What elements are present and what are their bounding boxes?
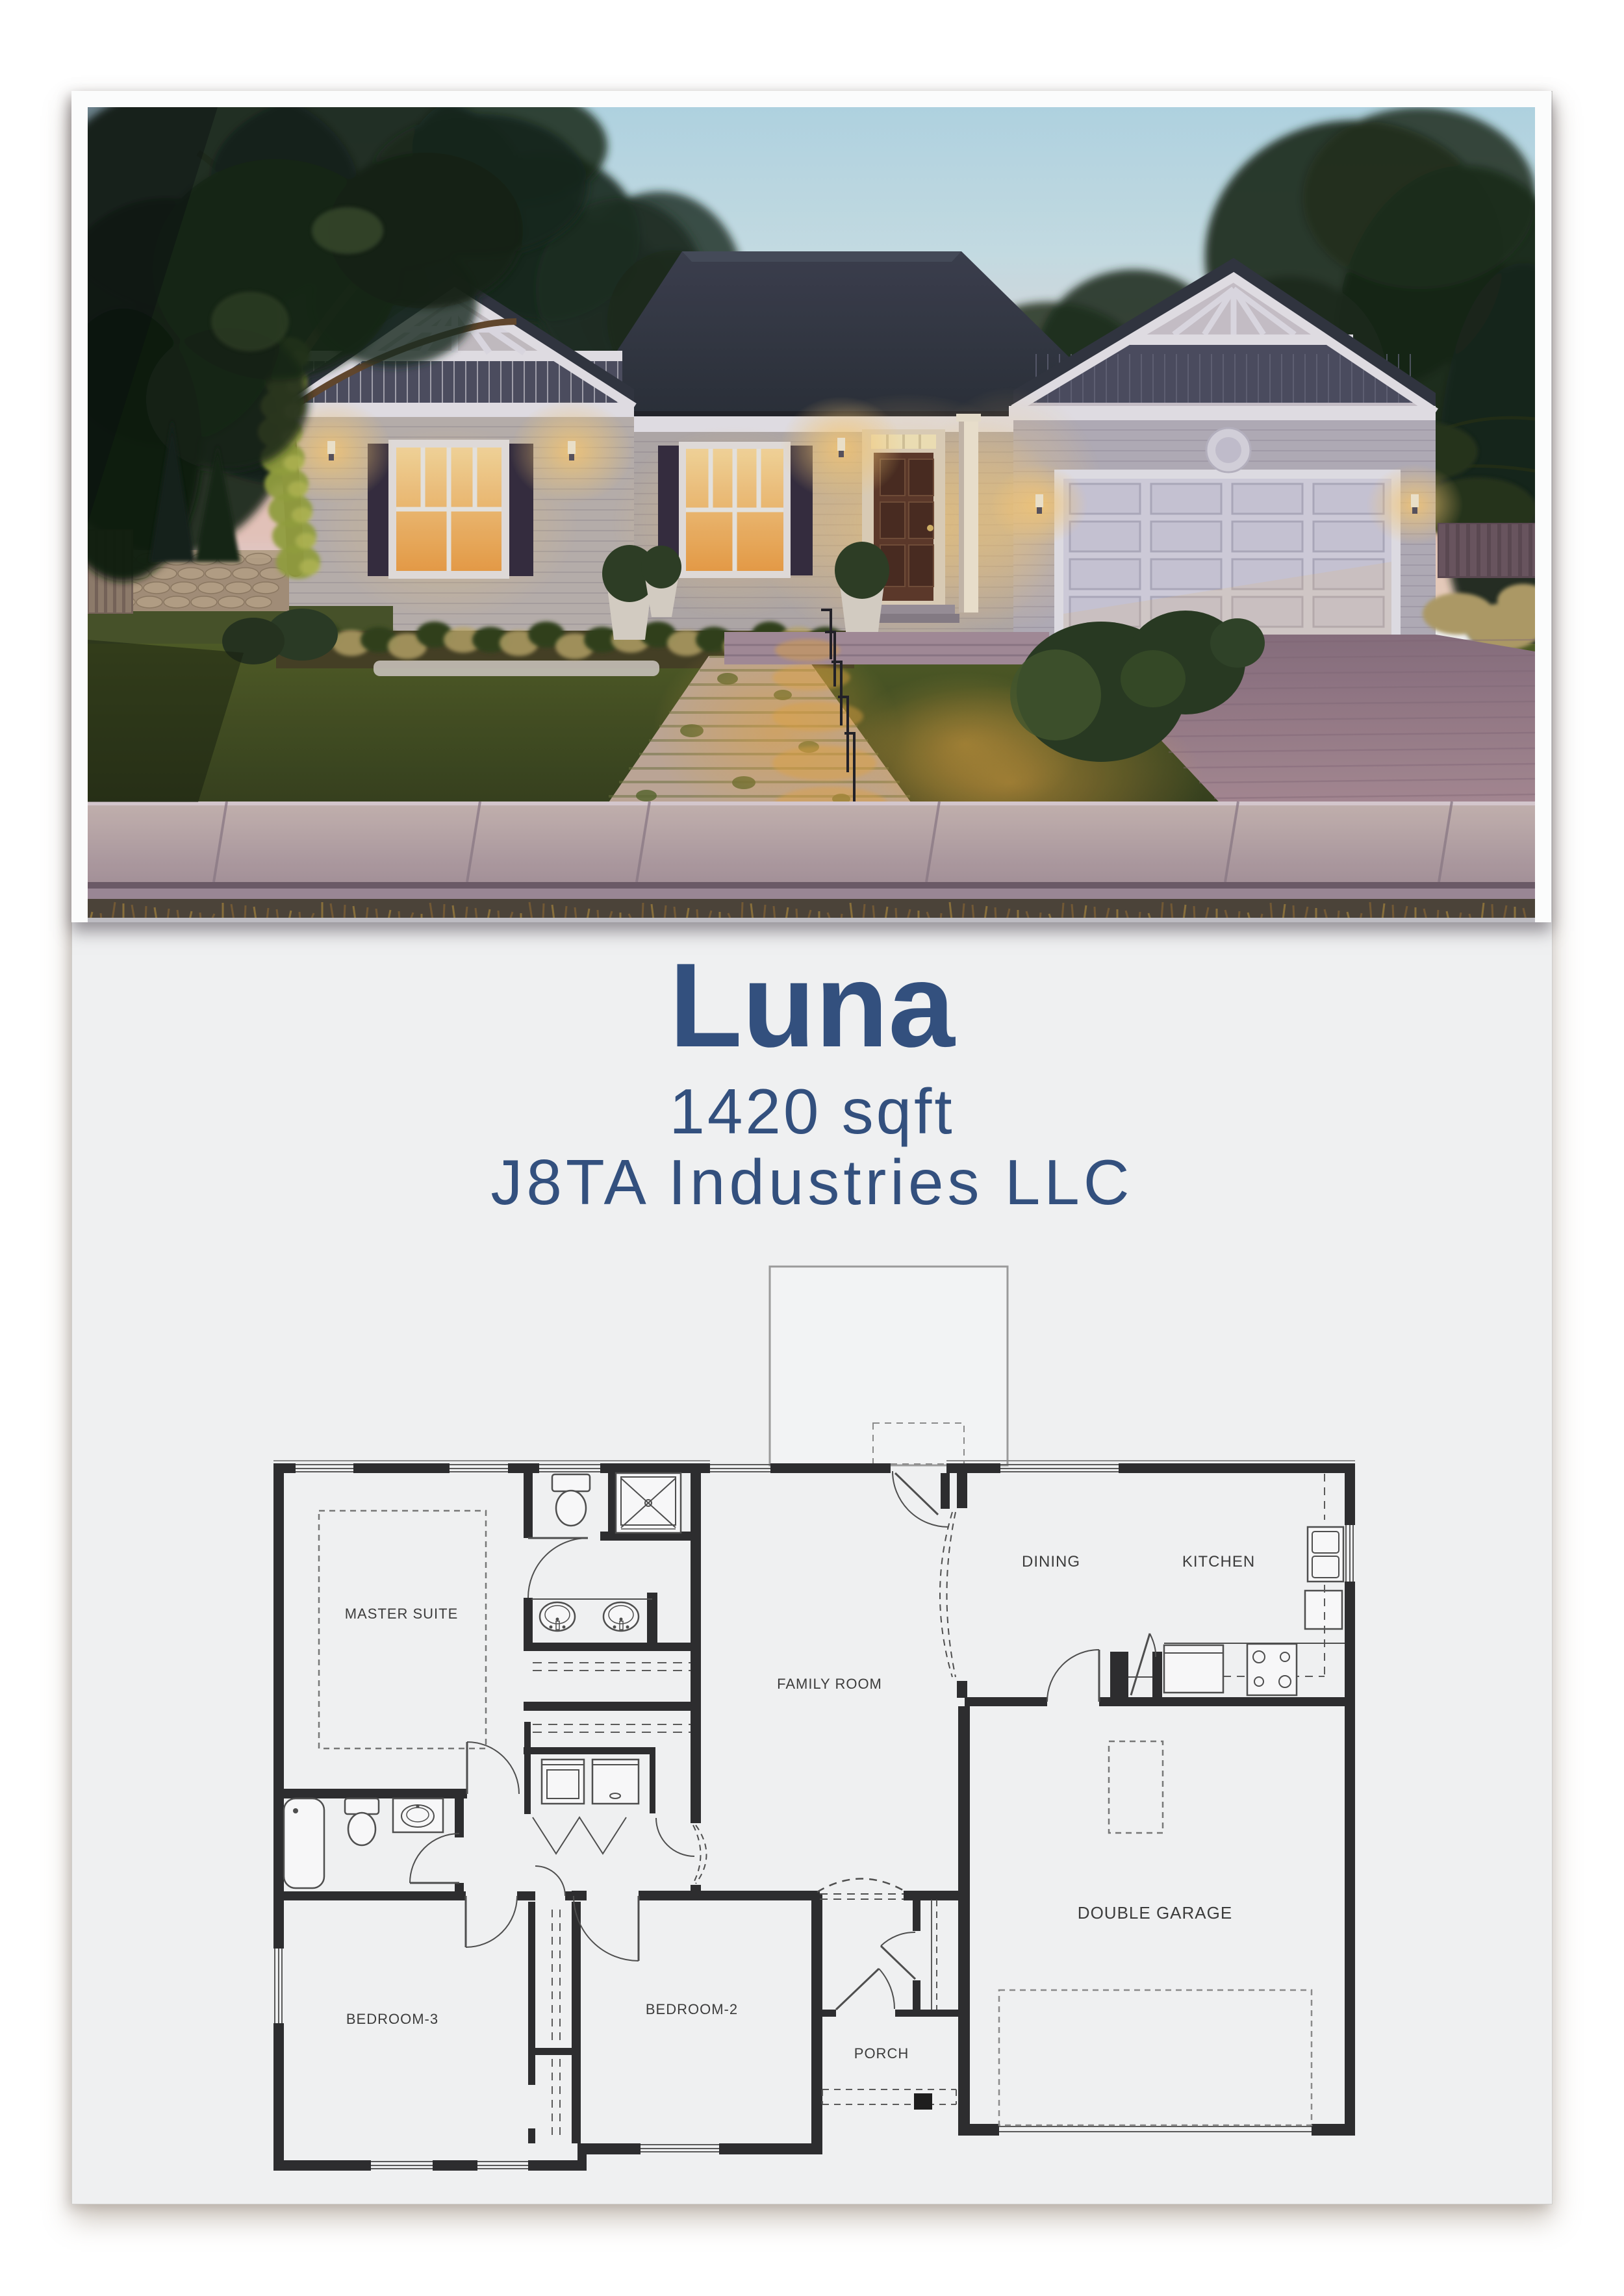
svg-text:MASTER SUITE: MASTER SUITE [345,1606,459,1622]
svg-text:BEDROOM-2: BEDROOM-2 [646,2001,738,2017]
svg-text:KITCHEN: KITCHEN [1182,1553,1255,1571]
svg-text:DOUBLE GARAGE: DOUBLE GARAGE [1078,1903,1232,1923]
svg-text:DINING: DINING [1022,1553,1080,1571]
svg-text:BEDROOM-3: BEDROOM-3 [346,2011,438,2027]
svg-text:FAMILY ROOM: FAMILY ROOM [777,1676,882,1692]
svg-text:PORCH: PORCH [854,2045,909,2062]
